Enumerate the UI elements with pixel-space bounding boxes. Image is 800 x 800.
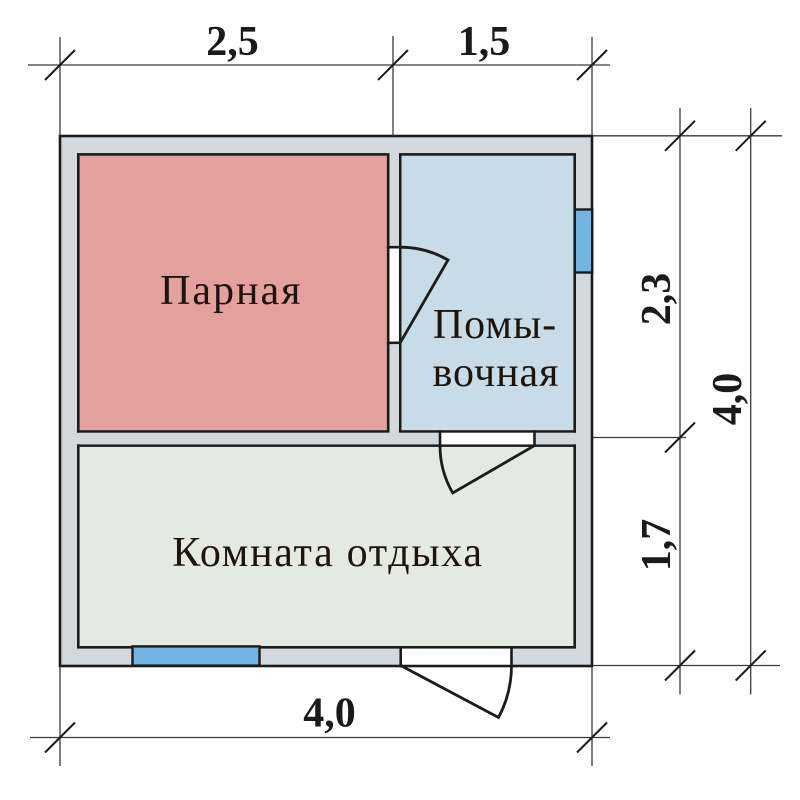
svg-text:Парная: Парная bbox=[160, 268, 302, 314]
svg-text:Комната отдыха: Комната отдыха bbox=[172, 530, 483, 576]
svg-text:4,0: 4,0 bbox=[303, 691, 356, 737]
svg-text:2,5: 2,5 bbox=[206, 19, 259, 65]
svg-text:4,0: 4,0 bbox=[705, 373, 751, 426]
svg-text:1,5: 1,5 bbox=[458, 19, 511, 65]
svg-text:Помы-: Помы- bbox=[433, 302, 557, 348]
svg-text:вочная: вочная bbox=[432, 350, 559, 396]
svg-text:1,7: 1,7 bbox=[634, 519, 680, 572]
svg-text:2,3: 2,3 bbox=[634, 273, 680, 326]
